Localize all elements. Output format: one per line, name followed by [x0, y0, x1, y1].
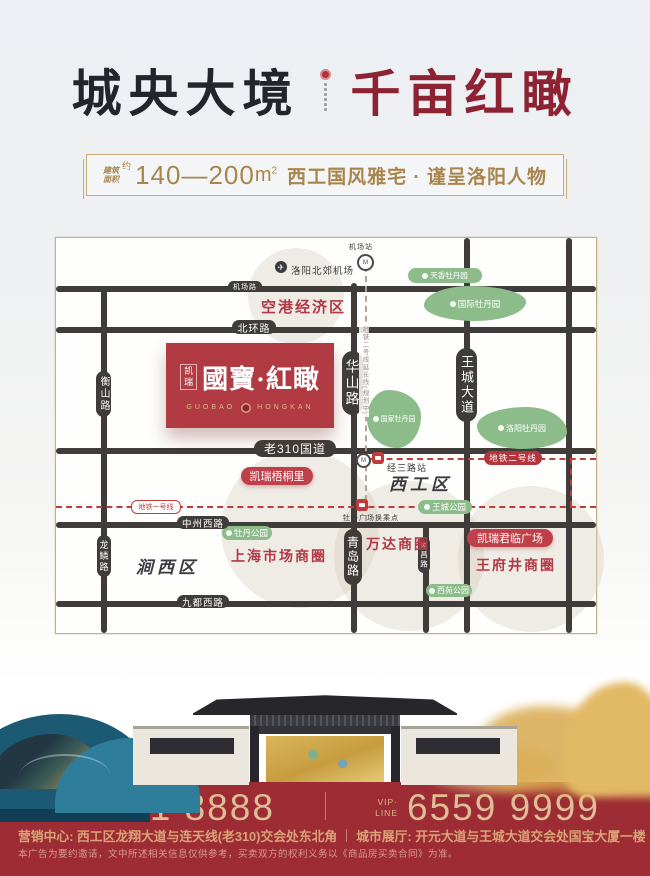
- station-icon-airport-station: M: [357, 254, 374, 271]
- project-logo-card: 凯瑞 國寶·紅瞰 GUOBAO HONGKAN: [166, 343, 334, 428]
- tagline: 西工国风雅宅 · 谨呈洛阳人物: [287, 162, 547, 189]
- road: [56, 601, 596, 607]
- airplane-icon: ✈: [275, 261, 287, 273]
- disclaimer: 本广告为要约邀请，文中所述相关信息仅供参考，买卖双方的权利义务以《商品房买卖合同…: [18, 846, 458, 860]
- red-seal-icon: [320, 69, 331, 80]
- gate-mural: [266, 736, 384, 782]
- gate-wall-left: [133, 726, 249, 785]
- seal-inscription-ornament: [324, 83, 327, 111]
- metro-station-icon-jingsan-road-station: [372, 452, 384, 464]
- area-banner: 建筑 面积 约 140—200 m2 西工国风雅宅 · 谨呈洛阳人物: [86, 154, 564, 196]
- park-international-peony-garden: 国际牡丹园: [424, 286, 526, 321]
- title-left: 城央大境: [72, 54, 300, 126]
- area-label: 建筑 面积: [103, 166, 119, 184]
- address-divider: [346, 829, 347, 842]
- park-nav-icon: [226, 530, 232, 536]
- area-unit: m2: [255, 164, 277, 187]
- park-nav-icon: [422, 273, 428, 279]
- park-xiyuan-park: 西苑公园: [426, 584, 472, 597]
- wave-line-ornament: [20, 754, 110, 796]
- gate-window-band-right: [416, 738, 500, 754]
- logo-seal-icon: [241, 403, 251, 413]
- gate-window-band-left: [150, 738, 234, 754]
- zone-wanda-circle: 万达商圈: [366, 534, 430, 554]
- road-label-longlin-road: 龙鳞路: [97, 535, 111, 577]
- station-label-airport-station: 机场站: [349, 242, 373, 252]
- title-seal-icon: [320, 69, 331, 111]
- city-hall-address: 城市展厅: 开元大道与王城大道交会处国宝大厦一楼: [356, 826, 645, 845]
- park-luoyang-peony-garden: 洛阳牡丹园: [477, 407, 567, 449]
- metro-station-icon-mudan-square-transfer: [356, 499, 368, 511]
- logo-name: 國寶·紅瞰: [202, 359, 320, 396]
- road: [56, 522, 596, 528]
- area-range: 140—200: [135, 160, 255, 191]
- gate-beam: [259, 726, 391, 734]
- station-label-jingsan-road-station: 经三路站: [387, 461, 427, 474]
- park-nav-icon: [424, 504, 430, 510]
- road: [101, 286, 107, 633]
- metro-line: [570, 458, 572, 507]
- sales-center-address: 营销中心: 西工区龙翔大道与连天线(老310)交会处东北角: [18, 826, 337, 845]
- project-kairui-wutongli: 凯瑞梧桐里: [241, 467, 313, 485]
- park-national-peony-garden: 国家牡丹园: [367, 390, 421, 448]
- airport-label: 洛阳北郊机场: [291, 263, 354, 277]
- road-label-jiudu-west-road: 九都西路: [177, 595, 229, 608]
- district-jianxi-district: 涧西区: [136, 553, 199, 578]
- metro-label-metro-line-1: 地铁一号线: [131, 500, 181, 514]
- station-icon-jingsan-road-station: M: [356, 453, 371, 468]
- title-right: 千亩红瞰: [351, 54, 579, 126]
- location-map: 凯瑞 國寶·紅瞰 GUOBAO HONGKAN 机场路北环路老310国道中州西路…: [55, 237, 597, 634]
- metro-line: [356, 458, 596, 460]
- logo-brand: 凯瑞: [180, 364, 197, 390]
- logo-latin: GUOBAO HONGKAN: [186, 403, 313, 413]
- gate-roof: [193, 694, 457, 715]
- gold-tree-shape: [565, 682, 650, 797]
- road-label-wangcheng-avenue: 王城大道: [456, 348, 477, 422]
- road-label-old-310-road: 老310国道: [254, 440, 336, 457]
- park-nav-icon: [498, 425, 504, 431]
- road: [566, 238, 572, 633]
- park-nav-icon: [450, 301, 456, 307]
- metro-label-metro-line-2-extension: 地铁二号线延长线(规划中): [359, 324, 369, 417]
- park-wangcheng-park: 王城公园: [418, 500, 472, 514]
- project-kairui-junlin-plaza: 凯瑞君临广场: [467, 529, 553, 547]
- road-label-beihuan-road: 北环路: [232, 320, 276, 334]
- road-label-zhongzhou-west-road: 中州西路: [177, 516, 229, 529]
- building-art: [0, 636, 650, 782]
- park-mudan-park: 牡丹公园: [222, 526, 272, 540]
- zone-airport-economic-zone: 空港经济区: [261, 296, 346, 317]
- address-row: 营销中心: 西工区龙翔大道与连天线(老310)交会处东北角 城市展厅: 开元大道…: [18, 826, 632, 845]
- poster: 城央大境 千亩红瞰 建筑 面积 约 140—200 m2 西工国风雅宅 · 谨呈…: [0, 0, 650, 876]
- metro-label-metro-line-2: 地铁二号线: [484, 451, 542, 465]
- zone-wangfujing-circle: 王府井商圈: [476, 555, 556, 575]
- phone-divider: [325, 792, 326, 820]
- approx-label: 约: [122, 155, 131, 172]
- road-label-hengshan-road: 衡山路: [96, 371, 111, 417]
- phone-number-right: 6559 9999: [407, 787, 600, 829]
- gate-wall-right: [401, 726, 517, 785]
- road-label-qingdao-road: 青岛路: [344, 529, 362, 585]
- zone-shanghai-market-circle: 上海市场商圈: [231, 546, 327, 566]
- road-label-jichang-road: 机场路: [228, 281, 262, 292]
- gate-eave: [250, 714, 400, 726]
- park-nav-icon: [429, 588, 435, 594]
- station-label-mudan-square-transfer: 牡丹广场换乘点: [343, 513, 399, 523]
- road: [56, 327, 596, 333]
- park-tianxiang-peony-garden: 天香牡丹园: [408, 268, 482, 283]
- header-title: 城央大境 千亩红瞰: [0, 54, 650, 126]
- park-nav-icon: [373, 416, 379, 422]
- vip-line-label: VIP· LINE: [375, 797, 398, 818]
- road: [56, 286, 596, 292]
